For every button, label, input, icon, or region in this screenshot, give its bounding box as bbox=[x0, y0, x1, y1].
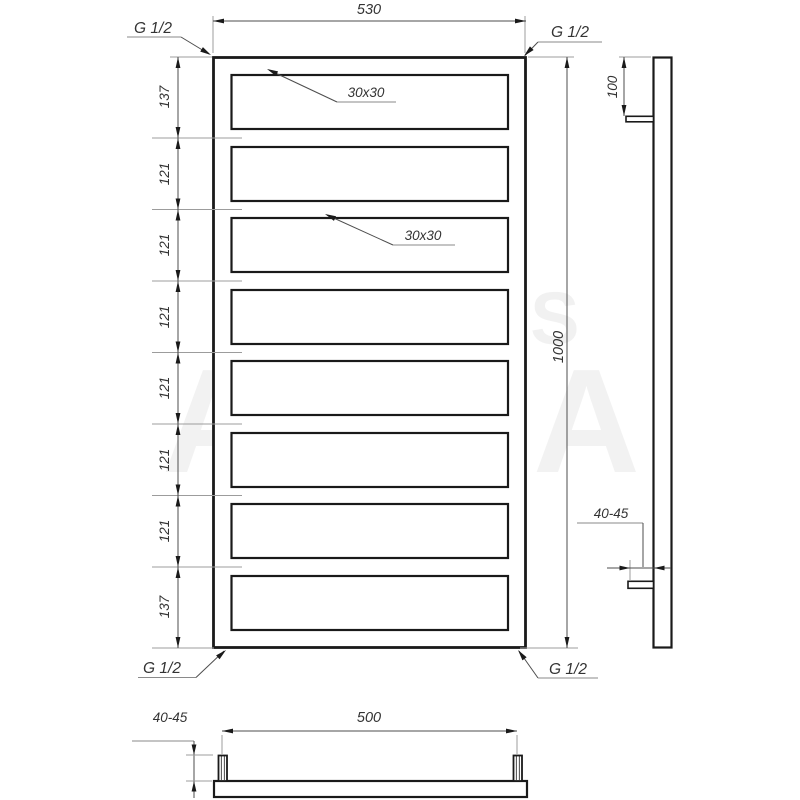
segment-value-4: 121 bbox=[157, 306, 172, 329]
arrowhead bbox=[506, 729, 517, 734]
arrowhead bbox=[620, 566, 631, 571]
arrowhead bbox=[176, 127, 181, 138]
segment-value-8: 137 bbox=[157, 595, 172, 618]
opening-8 bbox=[232, 576, 509, 630]
opening-7 bbox=[232, 504, 509, 558]
arrowhead bbox=[176, 567, 181, 578]
arrowhead bbox=[622, 57, 627, 68]
arrowhead bbox=[565, 637, 570, 648]
thread-label-value: G 1/2 bbox=[551, 24, 589, 41]
dim-connection-spacing-value: 500 bbox=[357, 710, 381, 726]
arrowhead bbox=[176, 210, 181, 221]
stub-outline bbox=[219, 756, 228, 782]
technical-drawing: GENESIS AQUA bbox=[0, 0, 800, 800]
dim-height-value: 1000 bbox=[551, 331, 567, 363]
thread-label-value: G 1/2 bbox=[134, 20, 172, 37]
dim-connection-spacing-500: 500 bbox=[222, 710, 517, 754]
dim-width-530: 530 bbox=[213, 2, 526, 53]
front-view bbox=[214, 58, 526, 648]
arrowhead bbox=[216, 648, 228, 659]
dim-top-offset-100: 100 bbox=[605, 57, 651, 116]
thread-label-bottom-right: G 1/2 bbox=[516, 648, 598, 678]
stub-outline bbox=[514, 756, 523, 782]
dim-bottom-wall-clearance: 40-45 bbox=[132, 710, 213, 798]
segment-value-7: 121 bbox=[157, 520, 172, 543]
arrowhead bbox=[176, 199, 181, 210]
thread-label-top-right: G 1/2 bbox=[522, 24, 602, 58]
opening-3 bbox=[232, 218, 509, 272]
arrowhead bbox=[213, 19, 224, 24]
arrowhead bbox=[192, 745, 197, 756]
arrowhead bbox=[565, 57, 570, 68]
pipe-stub-left bbox=[219, 756, 228, 782]
thread-label-value: G 1/2 bbox=[549, 661, 587, 678]
dim-top-offset-value: 100 bbox=[605, 75, 620, 98]
wall-bracket-bottom bbox=[628, 581, 654, 588]
arrowhead bbox=[515, 19, 526, 24]
thread-label-top-left: G 1/2 bbox=[127, 20, 212, 57]
opening-5 bbox=[232, 361, 509, 415]
profile-label-value: 30x30 bbox=[348, 85, 385, 100]
arrowhead bbox=[516, 648, 527, 660]
arrowhead bbox=[192, 781, 197, 792]
arrowhead bbox=[622, 105, 627, 116]
dim-width-value: 530 bbox=[357, 2, 381, 18]
dim-side-wall-clearance-value: 40-45 bbox=[594, 506, 629, 521]
opening-4 bbox=[232, 290, 509, 344]
arrowhead bbox=[176, 138, 181, 149]
segment-value-3: 121 bbox=[157, 234, 172, 257]
arrowhead bbox=[200, 47, 212, 57]
arrowhead bbox=[176, 57, 181, 68]
opening-6 bbox=[232, 433, 509, 487]
arrowhead bbox=[176, 556, 181, 567]
dim-bottom-wall-clearance-value: 40-45 bbox=[153, 710, 188, 725]
wall-bracket-top bbox=[626, 116, 654, 122]
arrowhead bbox=[222, 729, 233, 734]
pipe-stub-right bbox=[514, 756, 523, 782]
arrowhead bbox=[176, 270, 181, 281]
bottom-bar bbox=[214, 781, 527, 797]
profile-label-value: 30x30 bbox=[405, 228, 442, 243]
thread-label-bottom-left: G 1/2 bbox=[138, 648, 228, 677]
segment-value-2: 121 bbox=[157, 163, 172, 186]
arrowhead bbox=[176, 637, 181, 648]
segment-value-5: 121 bbox=[157, 377, 172, 400]
bottom-view bbox=[214, 756, 527, 798]
segment-value-1: 137 bbox=[157, 85, 172, 108]
side-tube bbox=[654, 58, 672, 648]
thread-label-value: G 1/2 bbox=[143, 660, 181, 677]
segment-value-6: 121 bbox=[157, 449, 172, 472]
arrowhead bbox=[176, 281, 181, 292]
drawing-canvas: GENESIS AQUA bbox=[0, 0, 800, 800]
opening-2 bbox=[232, 147, 509, 201]
